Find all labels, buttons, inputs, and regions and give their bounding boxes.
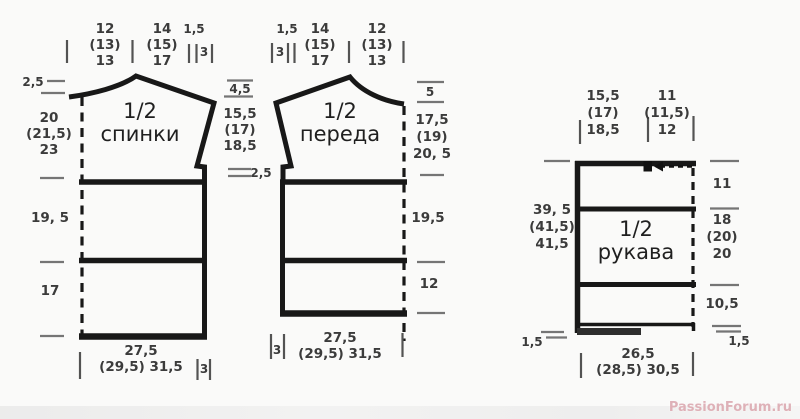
front-hem-width-label: 27,5 (29,5) 31,5	[298, 330, 382, 362]
sleeve-cap-label: 11	[713, 176, 732, 192]
armhole-step-label: 2,5	[250, 167, 271, 180]
back-shoulder-width-label: 14 (15) 17	[146, 21, 177, 69]
back-hem-width-label: 27,5 (29,5) 31,5	[99, 343, 183, 375]
front-raise-label: 1,5	[276, 23, 297, 36]
shoulder-drop-label: 4,5	[229, 83, 250, 96]
sleeve-hem-width-label: 26,5 (28,5) 30,5	[596, 346, 680, 378]
front-vent-label: 3	[273, 344, 281, 357]
sleeve-lower-label: 10,5	[705, 296, 738, 312]
sleeve-inner-width-label: 15,5 (17) 18,5	[586, 88, 619, 139]
sleeve-piece-title: 1/2 рукава	[598, 218, 675, 264]
sleeve-shoulder-mark	[644, 161, 653, 172]
front-neck-width-label: 12 (13) 13	[361, 21, 392, 69]
back-armhole-label: 20 (21,5) 23	[26, 110, 72, 158]
back-piece-title: 1/2 спинки	[101, 100, 180, 146]
back-raise-label: 1,5	[183, 23, 204, 36]
armhole-depth-label: 15,5 (17) 18,5	[223, 106, 256, 154]
back-neck-depth-label: 2,5	[22, 76, 43, 89]
sleeve-upper-label: 18 (20) 20	[706, 212, 737, 263]
front-slope-label: 3	[276, 46, 284, 59]
sleeve-length-label: 39, 5 (41,5) 41,5	[529, 202, 575, 253]
back-mid-length-label: 19, 5	[31, 210, 69, 226]
back-neck-width-label: 12 (13) 13	[89, 21, 120, 69]
back-vent-label: 3	[200, 363, 208, 376]
back-lower-length-label: 17	[41, 283, 60, 299]
front-shoulder-width-label: 14 (15) 17	[304, 21, 335, 69]
front-lower-length-label: 12	[420, 276, 439, 292]
knitting-pattern-diagram: 1/2 спинки 12 (13) 13 14 (15) 17 1,5 3 2…	[0, 0, 800, 419]
sleeve-right-hem-label: 1,5	[728, 335, 749, 348]
sleeve-outer-width-label: 11 (11,5) 12	[644, 88, 690, 139]
back-slope-label: 3	[200, 46, 208, 59]
front-mid-length-label: 19,5	[411, 210, 444, 226]
front-piece-title: 1/2 переда	[300, 100, 380, 146]
front-neck-depth-label: 5	[426, 86, 434, 99]
watermark: PassionForum.ru	[669, 400, 792, 415]
sleeve-left-hem-label: 1,5	[521, 336, 542, 349]
front-armhole-label: 17,5 (19) 20, 5	[413, 112, 451, 163]
